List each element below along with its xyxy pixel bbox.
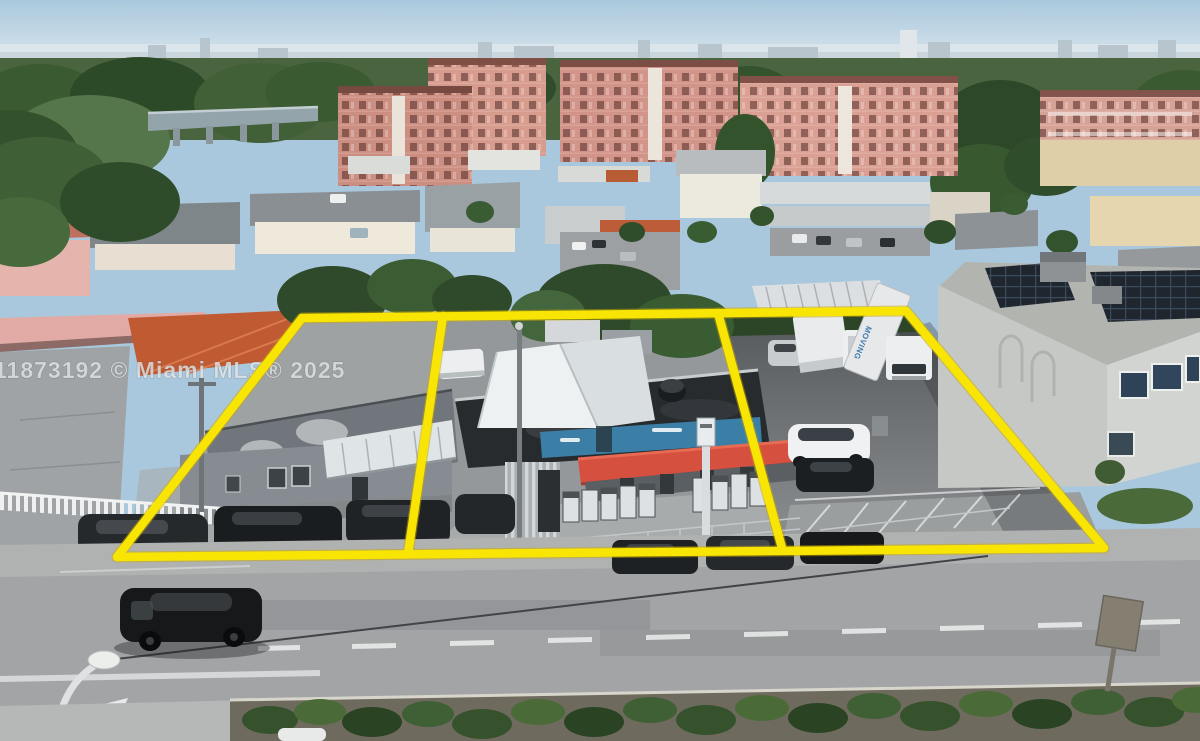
aerial-photo: MOVING <box>0 0 1200 741</box>
white-rv-trailer <box>437 348 485 379</box>
parked-car <box>455 494 515 534</box>
mls-watermark: 11873192 © Miami MLS® 2025 <box>0 357 345 383</box>
street-light-pole <box>517 328 522 544</box>
white-car-roof <box>278 728 326 741</box>
condo-block <box>560 60 738 162</box>
black-car <box>796 458 874 492</box>
box-truck <box>792 309 850 373</box>
parked-car <box>346 500 450 544</box>
black-minivan <box>114 588 270 659</box>
box-truck-front <box>886 336 932 380</box>
